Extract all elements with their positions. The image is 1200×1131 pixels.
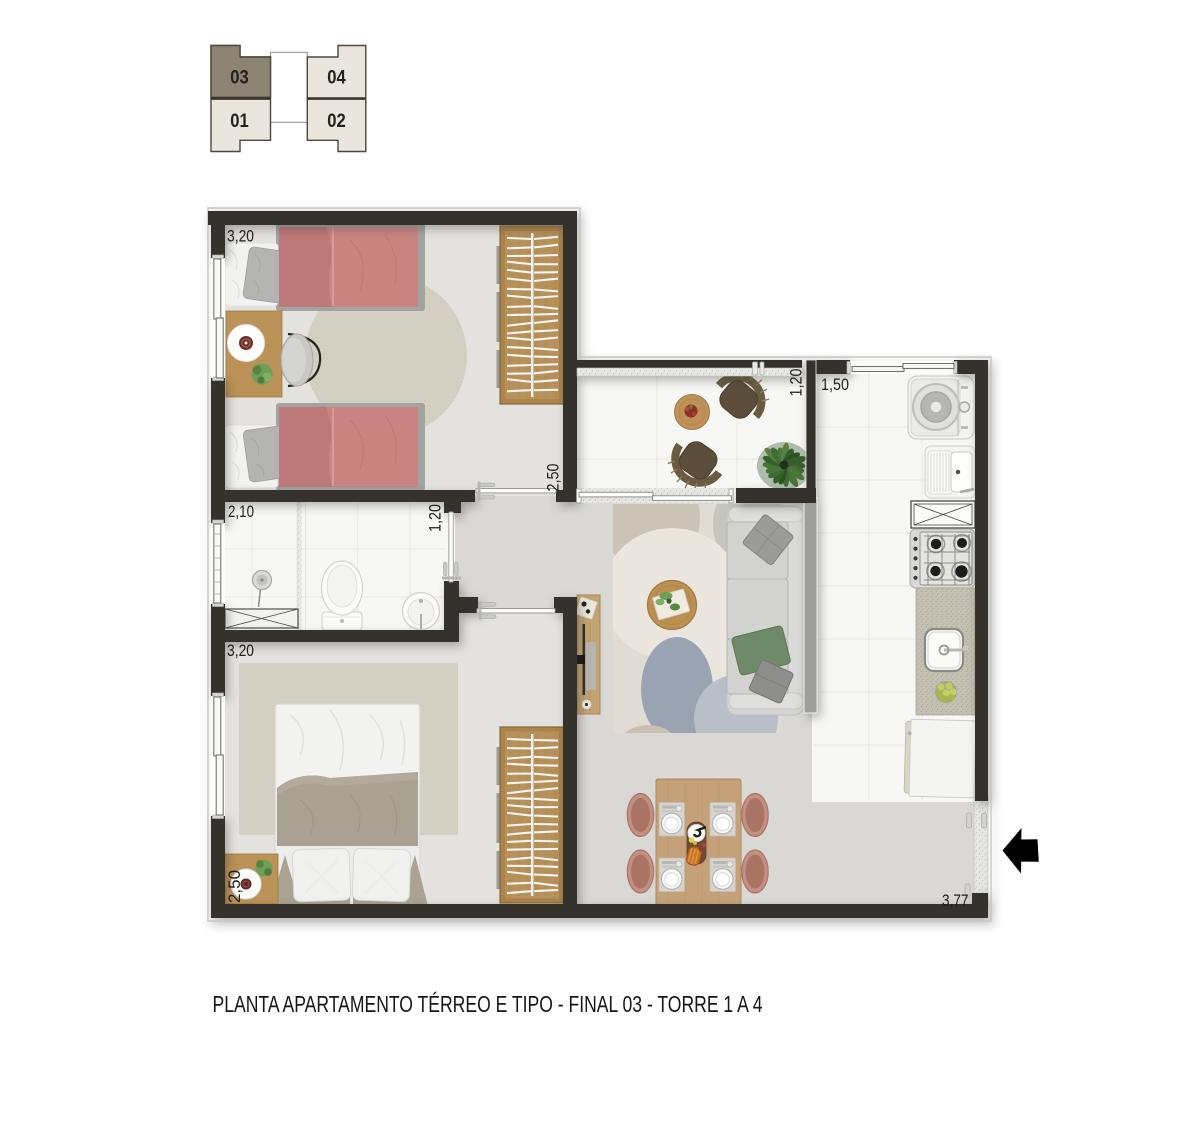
svg-text:2,10: 2,10: [228, 502, 254, 521]
svg-text:1,20: 1,20: [426, 504, 445, 532]
svg-text:03: 03: [230, 67, 249, 89]
svg-text:3,20: 3,20: [227, 227, 254, 246]
svg-text:2,50: 2,50: [544, 464, 563, 492]
svg-text:04: 04: [327, 67, 346, 89]
svg-text:1,50: 1,50: [821, 375, 849, 394]
svg-text:2,50: 2,50: [225, 870, 244, 903]
svg-text:1,20: 1,20: [787, 369, 806, 397]
svg-text:3,20: 3,20: [227, 641, 254, 660]
svg-text:01: 01: [230, 110, 249, 132]
svg-text:PLANTA APARTAMENTO TÉRREO E TI: PLANTA APARTAMENTO TÉRREO E TIPO - FINAL…: [213, 991, 763, 1017]
svg-text:3,77: 3,77: [942, 891, 969, 910]
svg-text:02: 02: [327, 110, 346, 132]
